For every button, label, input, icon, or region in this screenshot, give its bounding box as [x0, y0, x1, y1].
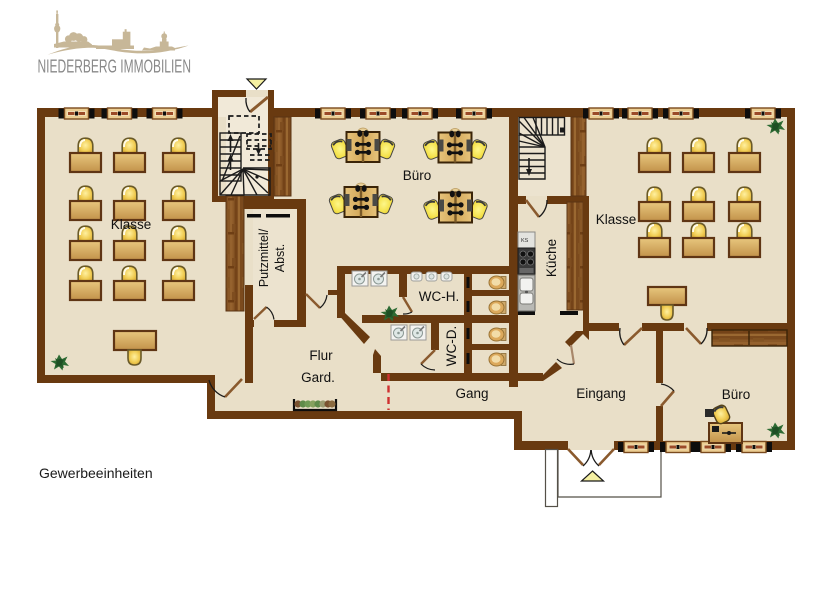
svg-text:Gang: Gang: [455, 386, 488, 401]
svg-text:Klasse: Klasse: [596, 212, 637, 227]
svg-text:Klasse: Klasse: [111, 217, 152, 232]
svg-text:Büro: Büro: [722, 387, 751, 402]
svg-text:Abst.: Abst.: [273, 244, 287, 273]
svg-text:Putzmittel/: Putzmittel/: [257, 228, 271, 287]
svg-text:Eingang: Eingang: [576, 386, 626, 401]
svg-text:KS: KS: [521, 238, 529, 244]
svg-text:Flur: Flur: [309, 348, 333, 363]
svg-text:WC-H.: WC-H.: [419, 289, 460, 304]
svg-text:Büro: Büro: [403, 168, 432, 183]
svg-text:Küche: Küche: [544, 239, 559, 277]
svg-text:Gewerbeeinheiten: Gewerbeeinheiten: [39, 465, 153, 481]
svg-text:Gard.: Gard.: [301, 370, 335, 385]
svg-text:NIEDERBERG IMMOBILIEN: NIEDERBERG IMMOBILIEN: [38, 56, 192, 76]
svg-text:WC-D.: WC-D.: [444, 326, 459, 367]
